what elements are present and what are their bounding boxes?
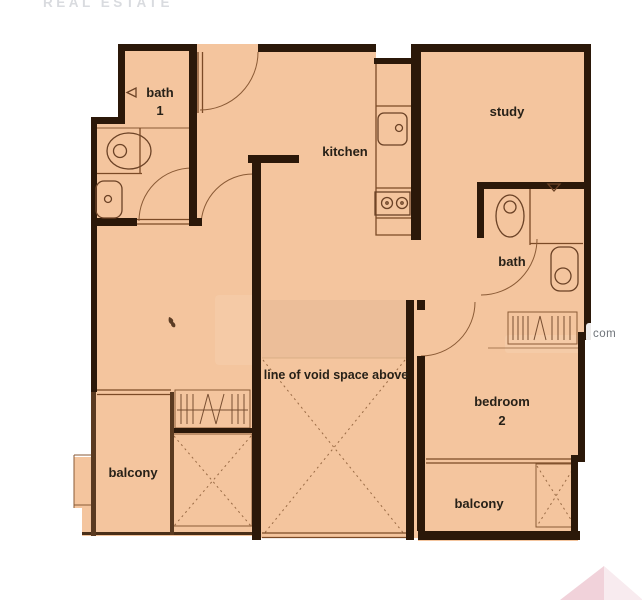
watermark-real-estate: REAL ESTATE [43,0,173,10]
watermark-right-text: com [593,328,616,340]
label-bath1-number: 1 [156,103,163,118]
label-bedroom2-number: 2 [498,413,505,428]
logo-triangle [560,566,642,600]
floor-plan-page: bath 1 kitchen study bath bedroom 2 balc… [0,0,642,600]
label-kitchen: kitchen [322,144,368,159]
label-balcony-left: balcony [108,465,158,480]
balcony-left-outer-wall [91,392,96,536]
balcony-left-inner-wall [170,392,174,535]
label-bath2: bath [498,254,526,269]
label-void-note: line of void space above [264,368,409,382]
label-bath1: bath [146,85,174,100]
floor-plan-drawing: bath 1 kitchen study bath bedroom 2 balc… [0,0,642,600]
label-bedroom2: bedroom [474,394,530,409]
label-balcony-right: balcony [454,496,504,511]
label-study: study [490,104,525,119]
watermark-right: com [586,323,630,342]
